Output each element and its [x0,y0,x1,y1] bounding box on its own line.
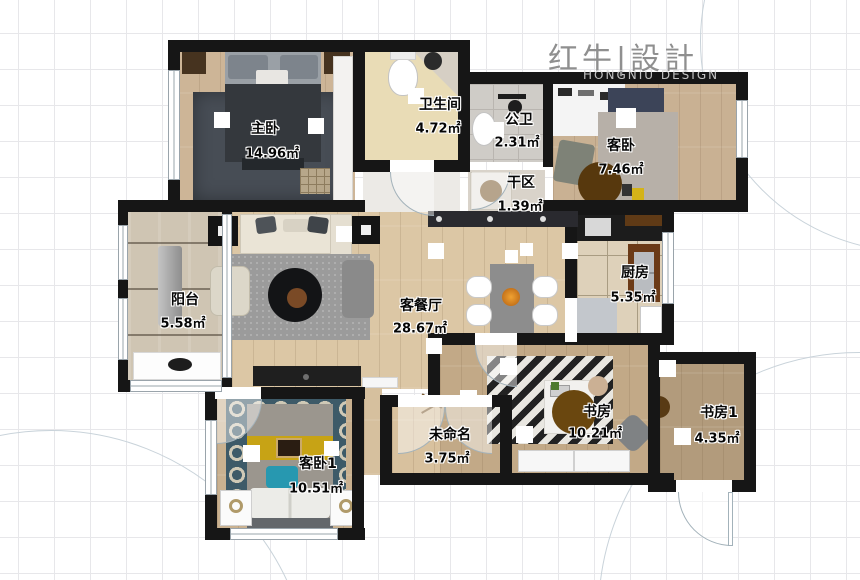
room-label: 未命名 [429,424,471,444]
dining-chair[interactable] [466,304,492,326]
room-label: 厨房 [621,262,649,282]
room-area-label: 4.35㎡ [694,428,739,447]
room-label: 客餐厅 [400,295,442,315]
floorplan-canvas: 主卧 14.96㎡ 卫生间 4.72㎡ 公卫 2.31㎡ 客卧 7.46㎡ 干区… [0,0,860,580]
room-area-label: 5.58㎡ [160,313,205,332]
door-opening [565,298,577,342]
room-area-label: 7.46㎡ [598,159,643,178]
dining-chair[interactable] [466,276,492,298]
room-area-label: 10.21㎡ [568,423,622,442]
room-area-label: 4.72㎡ [415,118,460,137]
selection-handle [516,426,533,443]
desk-gadget [558,88,572,96]
master-wardrobe[interactable] [333,56,353,201]
room-area-label: 3.75㎡ [424,448,469,467]
cutting-board [625,215,662,226]
dining-chair[interactable] [532,304,558,326]
window[interactable] [205,420,217,495]
downlight-icon [540,216,546,222]
room-area-label: 5.35㎡ [610,287,655,306]
balcony-glass-door[interactable] [222,214,232,378]
entry-door-leaf [728,492,733,546]
window[interactable] [118,298,128,360]
wall-segment[interactable] [353,40,365,172]
side-table-tray [361,225,371,235]
selection-handle [520,243,533,256]
selection-handle [214,112,230,128]
chaise-lounge[interactable] [342,260,374,318]
lamp-icon [229,499,243,513]
wall-segment[interactable] [118,200,365,212]
nightstand[interactable] [182,52,206,74]
selection-handle [674,428,691,445]
bed-footboard [247,518,333,528]
room-area-label: 2.31㎡ [494,132,539,151]
selection-handle [505,250,518,263]
sofa-pillow [255,216,277,235]
door-opening [398,395,492,407]
bed-runner-art [276,438,302,458]
laundry-sink [168,358,192,371]
dining-chair[interactable] [532,276,558,298]
selection-handle [243,445,260,462]
plaid-pillow [300,168,330,194]
room-area-label: 14.96㎡ [245,143,299,162]
window[interactable] [168,70,180,180]
decor-item [622,184,632,196]
selection-handle [336,226,352,242]
shower-fixture-icon [498,94,526,99]
selection-handle [460,390,477,407]
desk-gadget [600,92,608,100]
wardrobe[interactable] [518,450,630,472]
room-area-label: 10.51㎡ [289,478,343,497]
wall-segment[interactable] [500,395,512,485]
downlight-icon [436,216,442,222]
cooktop [585,218,611,236]
room-area-label: 28.67㎡ [393,318,447,337]
room-label: 公卫 [505,109,533,129]
wall-segment[interactable] [168,40,470,52]
selection-handle [500,358,517,375]
window[interactable] [662,232,674,304]
window[interactable] [118,225,128,280]
wall-segment[interactable] [565,203,674,215]
selection-handle [616,108,636,128]
selection-handle [659,360,676,377]
wall-segment[interactable] [428,333,674,345]
door-opening [390,160,434,172]
selection-handle [426,338,442,354]
room-label: 客卧 [607,135,635,155]
coffee-table-tray [287,288,307,308]
sofa-pillow [307,216,329,235]
door-opening [676,480,732,492]
selection-handle [428,243,444,259]
room-label: 阳台 [171,289,199,309]
wall-segment[interactable] [543,72,553,167]
shoe-bench[interactable] [362,377,398,388]
wall-sink-icon[interactable] [424,52,442,70]
desk-gadget [578,90,594,96]
window[interactable] [230,528,338,540]
dining-centerpiece [502,288,520,306]
room-label: 卫生间 [419,94,461,114]
door-opening [475,333,517,345]
room-label: 主卧 [251,118,279,138]
room-label: 客卧1 [299,453,337,473]
sofa-pillow [283,219,309,232]
selection-handle [308,118,324,134]
downlight-icon [487,216,493,222]
wall-segment[interactable] [352,387,364,540]
selection-handle [562,243,578,259]
desk-plant-icon [551,382,559,390]
wall-segment[interactable] [744,352,756,492]
room-area-label: 1.39㎡ [497,196,542,215]
tv-console-knob [303,374,309,380]
brand-logo-subtitle: HONGNIU DESIGN [583,68,719,82]
window[interactable] [736,100,748,158]
wall-segment[interactable] [380,395,392,485]
lamp-icon [339,499,353,513]
room-label: 书房 [583,401,611,421]
wall-segment[interactable] [380,473,674,485]
window[interactable] [130,380,222,392]
room-label: 书房1 [700,402,738,422]
room-floor-study-1[interactable] [660,364,746,482]
side-round-table[interactable] [588,376,608,396]
room-label: 干区 [507,172,535,192]
